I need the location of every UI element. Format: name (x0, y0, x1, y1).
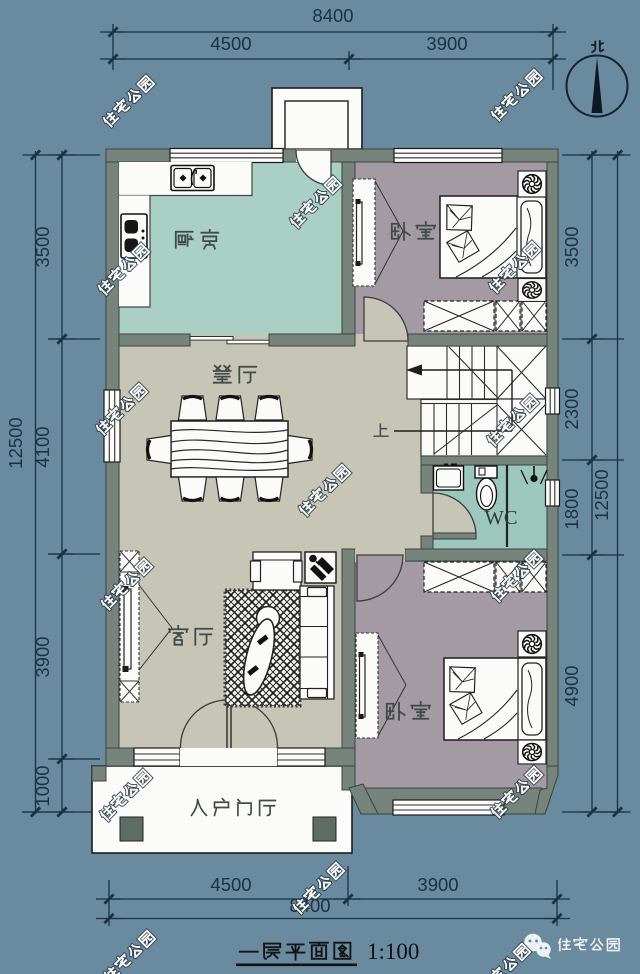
svg-text:3500: 3500 (32, 226, 53, 267)
svg-text:3900: 3900 (32, 636, 53, 677)
svg-text:3500: 3500 (561, 226, 582, 267)
svg-text:4500: 4500 (210, 874, 251, 895)
svg-text:8400: 8400 (312, 5, 353, 26)
svg-text:12500: 12500 (591, 469, 612, 520)
svg-text:2300: 2300 (561, 388, 582, 429)
svg-text:4900: 4900 (561, 665, 582, 706)
svg-text:1800: 1800 (561, 488, 582, 529)
svg-text:1000: 1000 (32, 765, 53, 806)
svg-text:12500: 12500 (5, 417, 26, 468)
svg-text:1:100: 1:100 (367, 939, 419, 964)
svg-text:WC: WC (484, 507, 517, 529)
svg-text:4100: 4100 (32, 426, 53, 467)
svg-text:3900: 3900 (417, 874, 458, 895)
svg-text:4500: 4500 (210, 33, 251, 54)
svg-text:3900: 3900 (426, 33, 467, 54)
